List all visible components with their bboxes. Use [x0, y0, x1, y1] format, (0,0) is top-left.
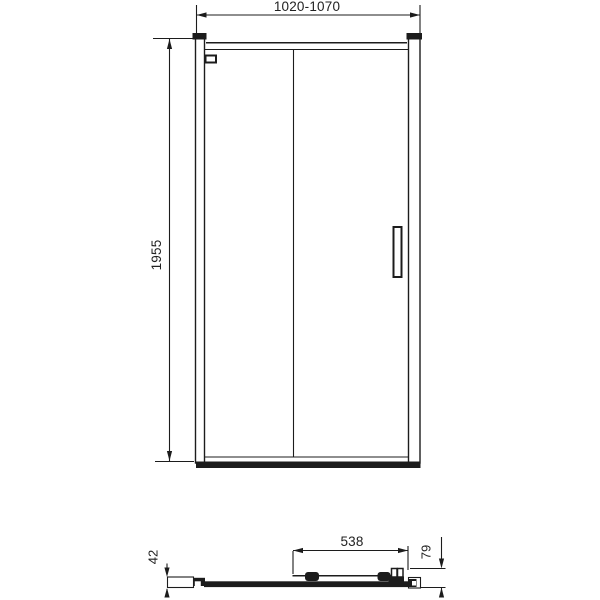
width-dimension: 1020-1070	[197, 0, 421, 33]
drawing-canvas: 1020-1070 1955	[0, 0, 600, 600]
arrow-left-icon	[293, 548, 303, 553]
left-profile-notch	[195, 581, 201, 586]
left-top-bracket	[193, 33, 207, 40]
height-dimension: 1955	[149, 39, 194, 462]
arrow-up-icon	[167, 39, 172, 49]
plan-view: 538 79 42	[146, 534, 446, 598]
arrow-down-icon	[167, 451, 172, 461]
arrow-left-icon	[197, 12, 207, 17]
arrow-down-icon	[164, 568, 169, 578]
left-wall-profile	[196, 37, 205, 463]
bottom-rail-section	[204, 581, 410, 587]
right-top-bracket	[407, 33, 423, 40]
roller-block-left	[392, 569, 398, 578]
left-wall-profile-section	[168, 577, 194, 588]
wall-bracket	[206, 56, 217, 63]
door-frame	[193, 33, 423, 468]
glass-clamp-left	[305, 572, 319, 581]
bottom-rail	[196, 462, 421, 469]
arrow-down-icon	[439, 559, 444, 569]
right-wall-profile	[409, 37, 421, 463]
front-view: 1020-1070 1955	[149, 0, 422, 468]
arrow-right-icon	[398, 548, 408, 553]
depth-dimension-label: 79	[419, 545, 434, 559]
arrow-up-icon	[164, 588, 169, 598]
arrow-right-icon	[410, 12, 420, 17]
panel-width-label: 538	[340, 534, 363, 549]
section-profile	[168, 569, 421, 589]
arrow-up-icon	[439, 588, 444, 598]
roller-block-right	[398, 569, 404, 578]
height-dimension-label: 1955	[149, 240, 164, 271]
technical-drawing: 1020-1070 1955	[0, 0, 600, 600]
wall-profile-dimension: 42	[146, 550, 170, 598]
right-profile-notch	[412, 581, 416, 586]
wall-profile-dimension-label: 42	[146, 550, 161, 564]
width-dimension-label: 1020-1070	[274, 0, 340, 14]
door-handle	[394, 227, 402, 277]
